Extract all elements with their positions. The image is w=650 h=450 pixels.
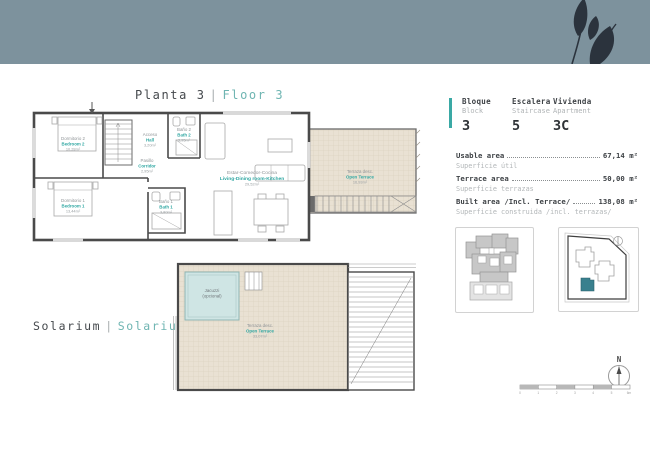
svg-text:3,20m²: 3,20m² — [144, 143, 157, 148]
svg-text:0: 0 — [519, 391, 521, 395]
svg-text:3,95m²: 3,95m² — [178, 138, 191, 143]
brochure-sheet: Planta 3|Floor 3 Solarium|Solarium — [0, 0, 650, 450]
svg-text:2,95m²: 2,95m² — [141, 169, 154, 174]
block-label-es: Bloque — [462, 97, 491, 106]
usable-area-value: 67,14 m² — [603, 151, 638, 160]
svg-text:3: 3 — [574, 391, 576, 395]
svg-text:16,93m²: 16,93m² — [353, 180, 368, 185]
dot-leader — [507, 157, 600, 158]
top-banner — [0, 0, 650, 64]
svg-text:33,07m²: 33,07m² — [253, 334, 268, 339]
svg-text:Jacuzzi: Jacuzzi — [205, 288, 220, 293]
staircase-label-es: Escalera — [512, 97, 551, 106]
area-summary: Usable area 67,14 m² Superficie útil Ter… — [456, 151, 638, 220]
built-area-label: Built area /Incl. Terrace/ — [456, 197, 570, 206]
svg-text:Dormitorio 1: Dormitorio 1 — [61, 198, 85, 203]
jacuzzi-steps — [245, 272, 262, 290]
svg-text:1: 1 — [537, 391, 539, 395]
dot-leader — [573, 203, 595, 204]
apartment-value: 3C — [553, 118, 592, 134]
terrace-area-row: Terrace area 50,00 m² — [456, 174, 638, 183]
terrace-area-value: 50,00 m² — [603, 174, 638, 183]
jacuzzi: Jacuzzi (opcional) — [185, 272, 239, 320]
scale-bar: 0 1 2 3 4 5 6m — [519, 383, 633, 396]
label-living: Estar-Comedor-Cocina Living-Dining room-… — [220, 170, 284, 187]
block-value: 3 — [462, 118, 491, 134]
staircase-label-en: Staircase — [512, 107, 551, 115]
solarium-plan-drawing: Jacuzzi (opcional) Terraza desc. Open Te… — [168, 256, 424, 398]
leaf-illustration — [538, 0, 628, 64]
solarium-left-railing — [174, 316, 177, 390]
svg-text:Acceso: Acceso — [143, 132, 158, 137]
teal-accent-bar — [449, 98, 452, 128]
solarium-stairs — [348, 264, 416, 390]
svg-text:13,44m²: 13,44m² — [66, 209, 81, 214]
svg-text:Baño 1: Baño 1 — [159, 199, 173, 204]
svg-text:(opcional): (opcional) — [202, 294, 222, 299]
key-plan-building — [455, 227, 534, 313]
svg-text:Estar-Comedor-Cocina: Estar-Comedor-Cocina — [227, 170, 277, 176]
terrace-area-label-es: Superficie terrazas — [456, 185, 638, 193]
apartment-label-en: Apartment — [553, 107, 592, 115]
usable-area-label-es: Superficie útil — [456, 162, 638, 170]
svg-text:29,52m²: 29,52m² — [245, 182, 260, 187]
svg-text:3,80m²: 3,80m² — [160, 210, 173, 215]
stairwell — [105, 120, 132, 165]
svg-text:Terraza desc.: Terraza desc. — [347, 169, 373, 174]
solarium-title-es: Solarium — [33, 319, 101, 333]
svg-text:Dormitorio 2: Dormitorio 2 — [61, 136, 85, 141]
built-area-label-es: Superficie construida /incl. terrazas/ — [456, 208, 638, 216]
svg-text:4: 4 — [592, 391, 594, 395]
block-label-en: Block — [462, 107, 491, 115]
apartment-label-es: Vivienda — [553, 97, 592, 106]
svg-text:N: N — [617, 355, 622, 364]
solarium-title: Solarium|Solarium — [33, 319, 186, 333]
staircase-column: Escalera Staircase 5 — [512, 97, 551, 134]
terrace-area-label: Terrace area — [456, 174, 509, 183]
svg-text:5: 5 — [611, 391, 613, 395]
svg-text:Pasillo: Pasillo — [141, 158, 154, 163]
svg-text:6m: 6m — [627, 391, 632, 395]
built-area-value: 138,08 m² — [598, 197, 638, 206]
svg-text:10,28m²: 10,28m² — [66, 147, 81, 152]
block-column: Bloque Block 3 — [462, 97, 491, 134]
highlighted-unit — [581, 278, 594, 291]
key-plan-site — [558, 227, 639, 312]
floor-plan-drawing: Dormitorio 2 Bedroom 2 10,28m² Dormitori… — [28, 100, 424, 250]
label-bath2: Baño 2 Bath 2 3,95m² — [177, 127, 191, 143]
svg-text:Baño 2: Baño 2 — [177, 127, 191, 132]
building-key-plan-drawing — [456, 228, 531, 310]
dot-leader — [512, 180, 600, 181]
svg-text:Terraza desc.: Terraza desc. — [247, 323, 273, 328]
built-area-row: Built area /Incl. Terrace/ 138,08 m² — [456, 197, 638, 206]
staircase-value: 5 — [512, 118, 551, 134]
label-corridor: Pasillo Corridor 2,95m² — [138, 158, 156, 174]
solarium-title-separator: | — [101, 319, 118, 333]
usable-area-label: Usable area — [456, 151, 504, 160]
svg-text:2: 2 — [556, 391, 558, 395]
site-key-plan-drawing — [559, 228, 636, 309]
site-compass-icon — [614, 237, 623, 246]
apartment-column: Vivienda Apartment 3C — [553, 97, 592, 134]
label-bath1: Baño 1 Bath 1 3,80m² — [159, 199, 173, 215]
usable-area-row: Usable area 67,14 m² — [456, 151, 638, 160]
label-hall: Acceso Hall 3,20m² — [143, 132, 158, 148]
